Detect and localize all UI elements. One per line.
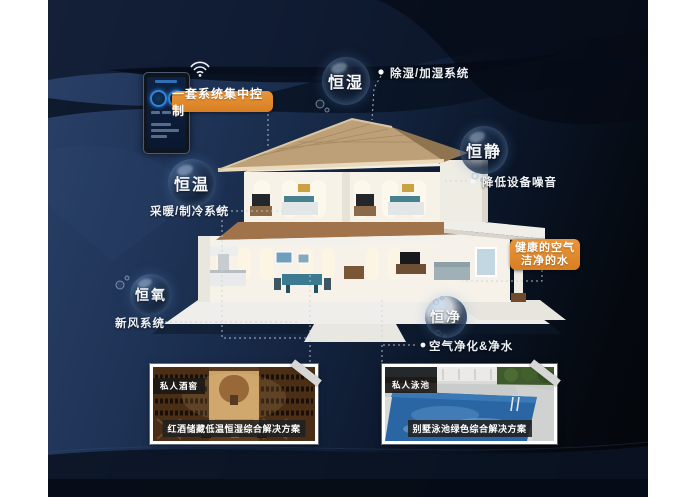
central-control-callout: 一套系统集中控制 xyxy=(172,91,273,112)
wine-cellar-card: 私人酒窖 红酒储藏低温恒湿综合解决方案 xyxy=(150,364,318,444)
climate-dial-left xyxy=(150,90,167,107)
bubble-constant-purity: 恒净 xyxy=(425,296,467,338)
wine-cellar-tag: 私人酒窖 xyxy=(153,378,205,394)
screen-header xyxy=(155,80,177,83)
desc-fresh-air-system: 新风系统 xyxy=(115,315,165,331)
bubble-constant-humidity: 恒湿 xyxy=(322,57,370,105)
desc-dehumidify-system: 除湿/加湿系统 xyxy=(390,65,469,81)
bubble-label: 恒温 xyxy=(174,171,210,195)
healthy-air-line: 健康的空气 xyxy=(515,242,575,255)
stage-background: 一套系统集中控制 健康的空气 洁净的水 恒湿 恒静 恒温 恒氧 恒净 除湿/加湿… xyxy=(48,0,648,497)
wifi-icon xyxy=(189,59,211,77)
desc-noise-reduction: 降低设备噪音 xyxy=(482,174,557,190)
desc-heating-cooling-system: 采暖/制冷系统 xyxy=(150,203,229,219)
clean-water-line: 洁净的水 xyxy=(521,255,569,268)
bubble-constant-oxygen: 恒氧 xyxy=(130,274,172,316)
bubble-label: 恒湿 xyxy=(328,69,364,93)
pool-tag: 私人泳池 xyxy=(385,377,437,393)
bubble-label: 恒静 xyxy=(466,138,502,162)
bubble-label: 恒氧 xyxy=(135,285,167,305)
healthy-air-water-callout: 健康的空气 洁净的水 xyxy=(510,239,580,270)
pool-caption: 别墅泳池绿色综合解决方案 xyxy=(407,420,531,437)
wine-cellar-caption: 红酒储藏低温恒湿综合解决方案 xyxy=(162,420,305,437)
bubble-constant-quiet: 恒静 xyxy=(460,126,508,174)
bubble-constant-temperature: 恒温 xyxy=(168,159,216,207)
central-control-label: 一套系统集中控制 xyxy=(172,85,273,119)
desc-air-water-purification: 空气净化&净水 xyxy=(429,338,513,354)
bubble-label: 恒净 xyxy=(430,307,462,327)
pool-card: 私人泳池 别墅泳池绿色综合解决方案 xyxy=(382,364,557,444)
infographic-canvas: 一套系统集中控制 健康的空气 洁净的水 恒湿 恒静 恒温 恒氧 恒净 除湿/加湿… xyxy=(0,0,700,497)
